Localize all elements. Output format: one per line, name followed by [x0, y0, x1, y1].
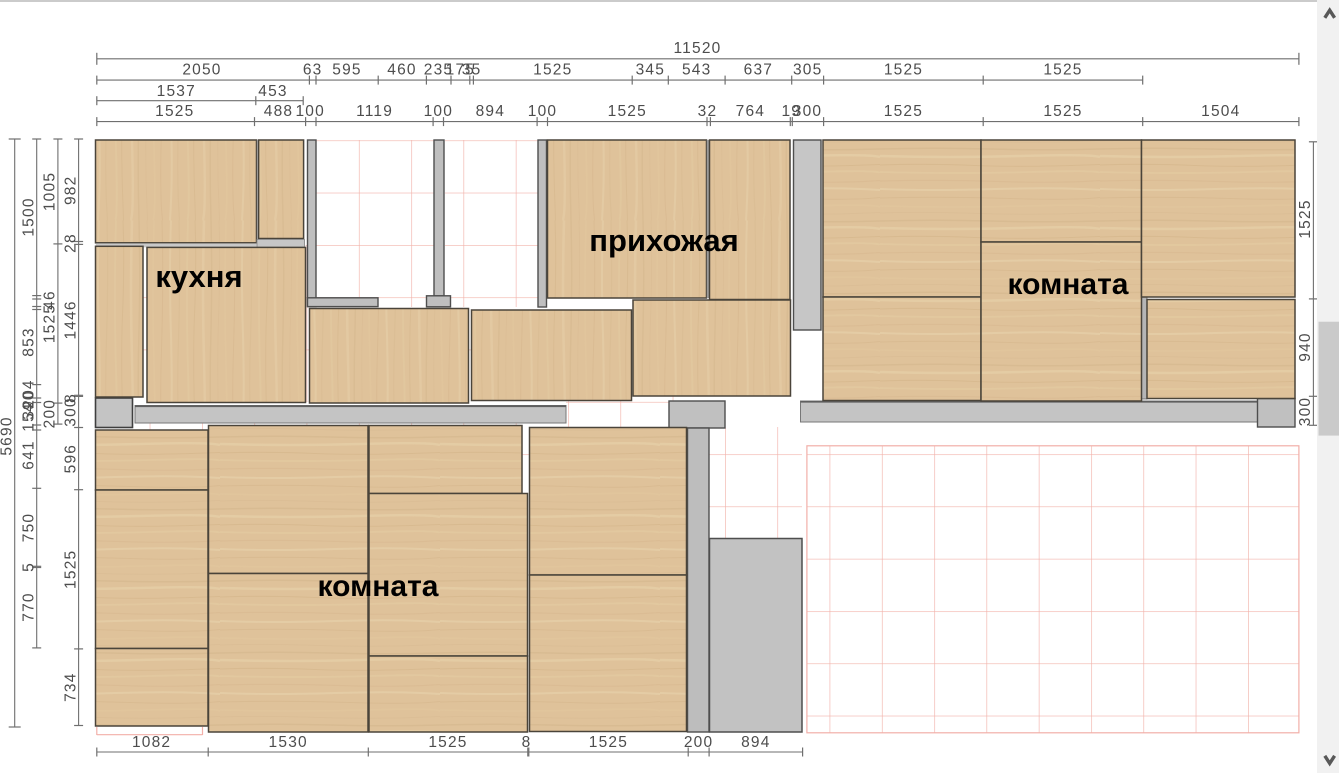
svg-text:1525: 1525 — [884, 103, 923, 120]
svg-text:345: 345 — [636, 62, 665, 79]
svg-text:940: 940 — [1297, 332, 1314, 361]
svg-text:5690: 5690 — [0, 416, 16, 455]
svg-text:1525: 1525 — [62, 550, 79, 589]
svg-text:2050: 2050 — [182, 62, 221, 79]
svg-text:596: 596 — [62, 444, 79, 473]
svg-text:прихожая: прихожая — [589, 223, 738, 258]
svg-text:1005: 1005 — [42, 172, 59, 211]
svg-text:комната: комната — [1008, 268, 1129, 301]
svg-text:1525: 1525 — [1043, 103, 1082, 120]
svg-text:32: 32 — [698, 103, 718, 120]
svg-text:1525: 1525 — [42, 304, 59, 343]
svg-text:543: 543 — [682, 62, 711, 79]
svg-text:300: 300 — [1297, 397, 1314, 426]
svg-text:1530: 1530 — [269, 734, 308, 751]
svg-text:комната: комната — [318, 570, 439, 603]
svg-text:853: 853 — [21, 327, 38, 356]
svg-text:кухня: кухня — [155, 259, 242, 294]
svg-text:764: 764 — [736, 103, 765, 120]
svg-text:982: 982 — [62, 176, 79, 205]
svg-text:28: 28 — [62, 233, 79, 253]
svg-text:637: 637 — [744, 62, 773, 79]
svg-text:1082: 1082 — [132, 734, 171, 751]
svg-text:200: 200 — [684, 734, 713, 751]
svg-text:8: 8 — [522, 734, 532, 751]
svg-text:305: 305 — [793, 62, 822, 79]
svg-text:200: 200 — [42, 399, 59, 428]
svg-text:1525: 1525 — [155, 103, 194, 120]
svg-text:1525: 1525 — [589, 734, 628, 751]
svg-text:100: 100 — [528, 103, 557, 120]
svg-text:1500: 1500 — [21, 197, 38, 236]
svg-text:1504: 1504 — [1201, 103, 1240, 120]
svg-text:460: 460 — [387, 62, 416, 79]
svg-text:1537: 1537 — [157, 83, 196, 100]
svg-text:641: 641 — [21, 440, 38, 469]
svg-text:154: 154 — [21, 402, 38, 431]
svg-text:453: 453 — [258, 83, 287, 100]
svg-text:100: 100 — [295, 103, 324, 120]
svg-text:300: 300 — [62, 397, 79, 426]
svg-text:1119: 1119 — [356, 103, 393, 120]
svg-text:734: 734 — [62, 672, 79, 701]
svg-text:894: 894 — [476, 103, 505, 120]
svg-text:1525: 1525 — [1297, 199, 1314, 238]
svg-text:770: 770 — [21, 592, 38, 621]
svg-text:750: 750 — [21, 513, 38, 542]
svg-text:595: 595 — [332, 62, 361, 79]
svg-text:1525: 1525 — [608, 103, 647, 120]
svg-text:1525: 1525 — [884, 62, 923, 79]
svg-text:5: 5 — [21, 562, 38, 572]
svg-text:488: 488 — [264, 103, 293, 120]
svg-text:35: 35 — [462, 62, 482, 79]
svg-text:1446: 1446 — [62, 300, 79, 339]
svg-text:894: 894 — [741, 734, 770, 751]
svg-text:1525: 1525 — [1043, 62, 1082, 79]
svg-text:1525: 1525 — [428, 734, 467, 751]
svg-text:63: 63 — [303, 62, 323, 79]
svg-text:11520: 11520 — [674, 40, 722, 57]
svg-text:100: 100 — [424, 103, 453, 120]
svg-text:1525: 1525 — [533, 62, 572, 79]
svg-text:300: 300 — [793, 103, 822, 120]
